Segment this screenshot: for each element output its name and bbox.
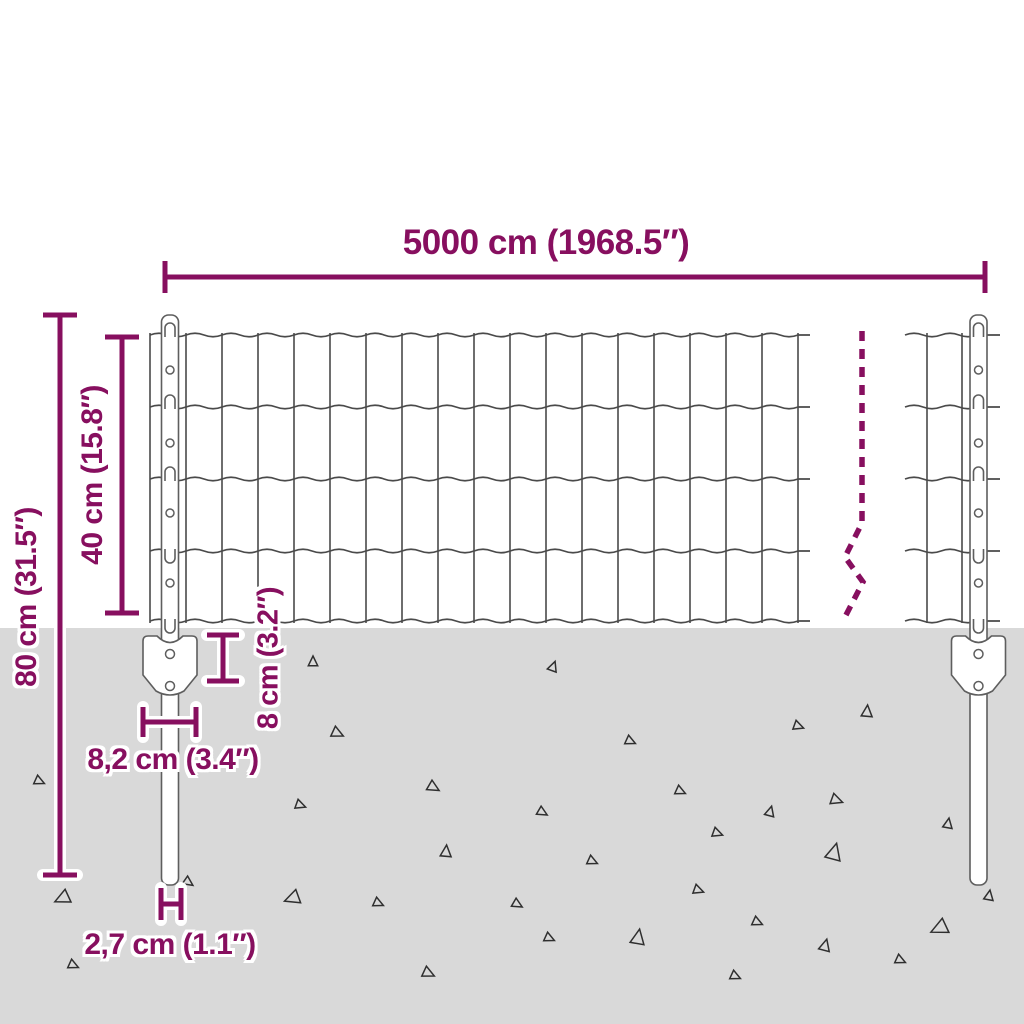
fence-mesh — [150, 333, 1000, 623]
left-post — [162, 315, 179, 885]
total-height-dimension-label: 80 cm (31.5″) — [10, 507, 44, 687]
post-diameter-dimension-label: 2,7 cm (1.1″) — [84, 928, 255, 962]
anchor-width-dimension-label: 8,2 cm (3.4″) — [87, 743, 258, 777]
diagram-canvas — [0, 0, 1024, 1024]
fence-dimension-diagram: 5000 cm (1968.5″) 80 cm (31.5″) 40 cm (1… — [0, 0, 1024, 1024]
anchor-plate-left — [143, 636, 197, 695]
right-post — [970, 315, 987, 885]
width-dimension-line — [165, 261, 985, 293]
panel-height-dimension-label: 40 cm (15.8″) — [76, 385, 110, 565]
anchor-depth-dimension-label: 8 cm (3.2″) — [253, 587, 286, 729]
panel-break-line — [845, 331, 863, 617]
anchor-plate-right — [952, 636, 1006, 695]
panel-height-dimension-line — [105, 337, 139, 613]
width-dimension-label: 5000 cm (1968.5″) — [403, 223, 690, 263]
